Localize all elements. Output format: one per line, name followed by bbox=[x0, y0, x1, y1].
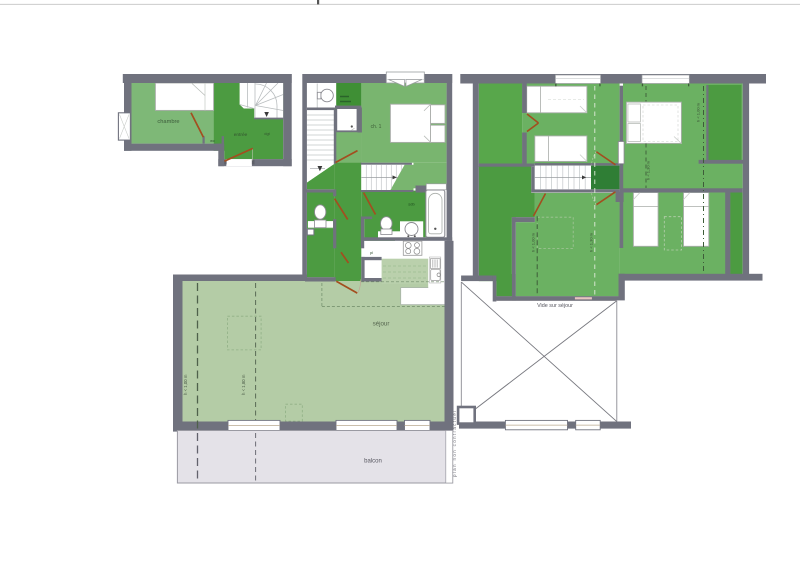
svg-text:h < 1,30 m: h < 1,30 m bbox=[589, 232, 594, 252]
svg-text:wc: wc bbox=[210, 139, 215, 143]
svg-text:h < 1,80 m: h < 1,80 m bbox=[241, 374, 246, 395]
svg-text:h < 1,00 m: h < 1,00 m bbox=[183, 374, 188, 395]
svg-text:plan non contractuel: plan non contractuel bbox=[452, 410, 457, 477]
svg-text:dgt: dgt bbox=[264, 131, 270, 136]
svg-text:Vide sur séjour: Vide sur séjour bbox=[537, 303, 573, 309]
svg-text:pl: pl bbox=[370, 250, 373, 255]
svg-text:balcon: balcon bbox=[364, 459, 382, 465]
svg-text:sdb: sdb bbox=[408, 202, 415, 207]
svg-text:h < 1,30 m: h < 1,30 m bbox=[646, 160, 651, 180]
svg-text:ch. 1: ch. 1 bbox=[371, 124, 382, 130]
svg-text:entrée: entrée bbox=[234, 132, 248, 138]
svg-text:chambre: chambre bbox=[157, 119, 179, 125]
svg-text:séjour: séjour bbox=[373, 321, 390, 328]
svg-text:h < 1,00 m: h < 1,00 m bbox=[696, 102, 701, 122]
svg-text:h < 1,00 m: h < 1,00 m bbox=[531, 232, 536, 252]
